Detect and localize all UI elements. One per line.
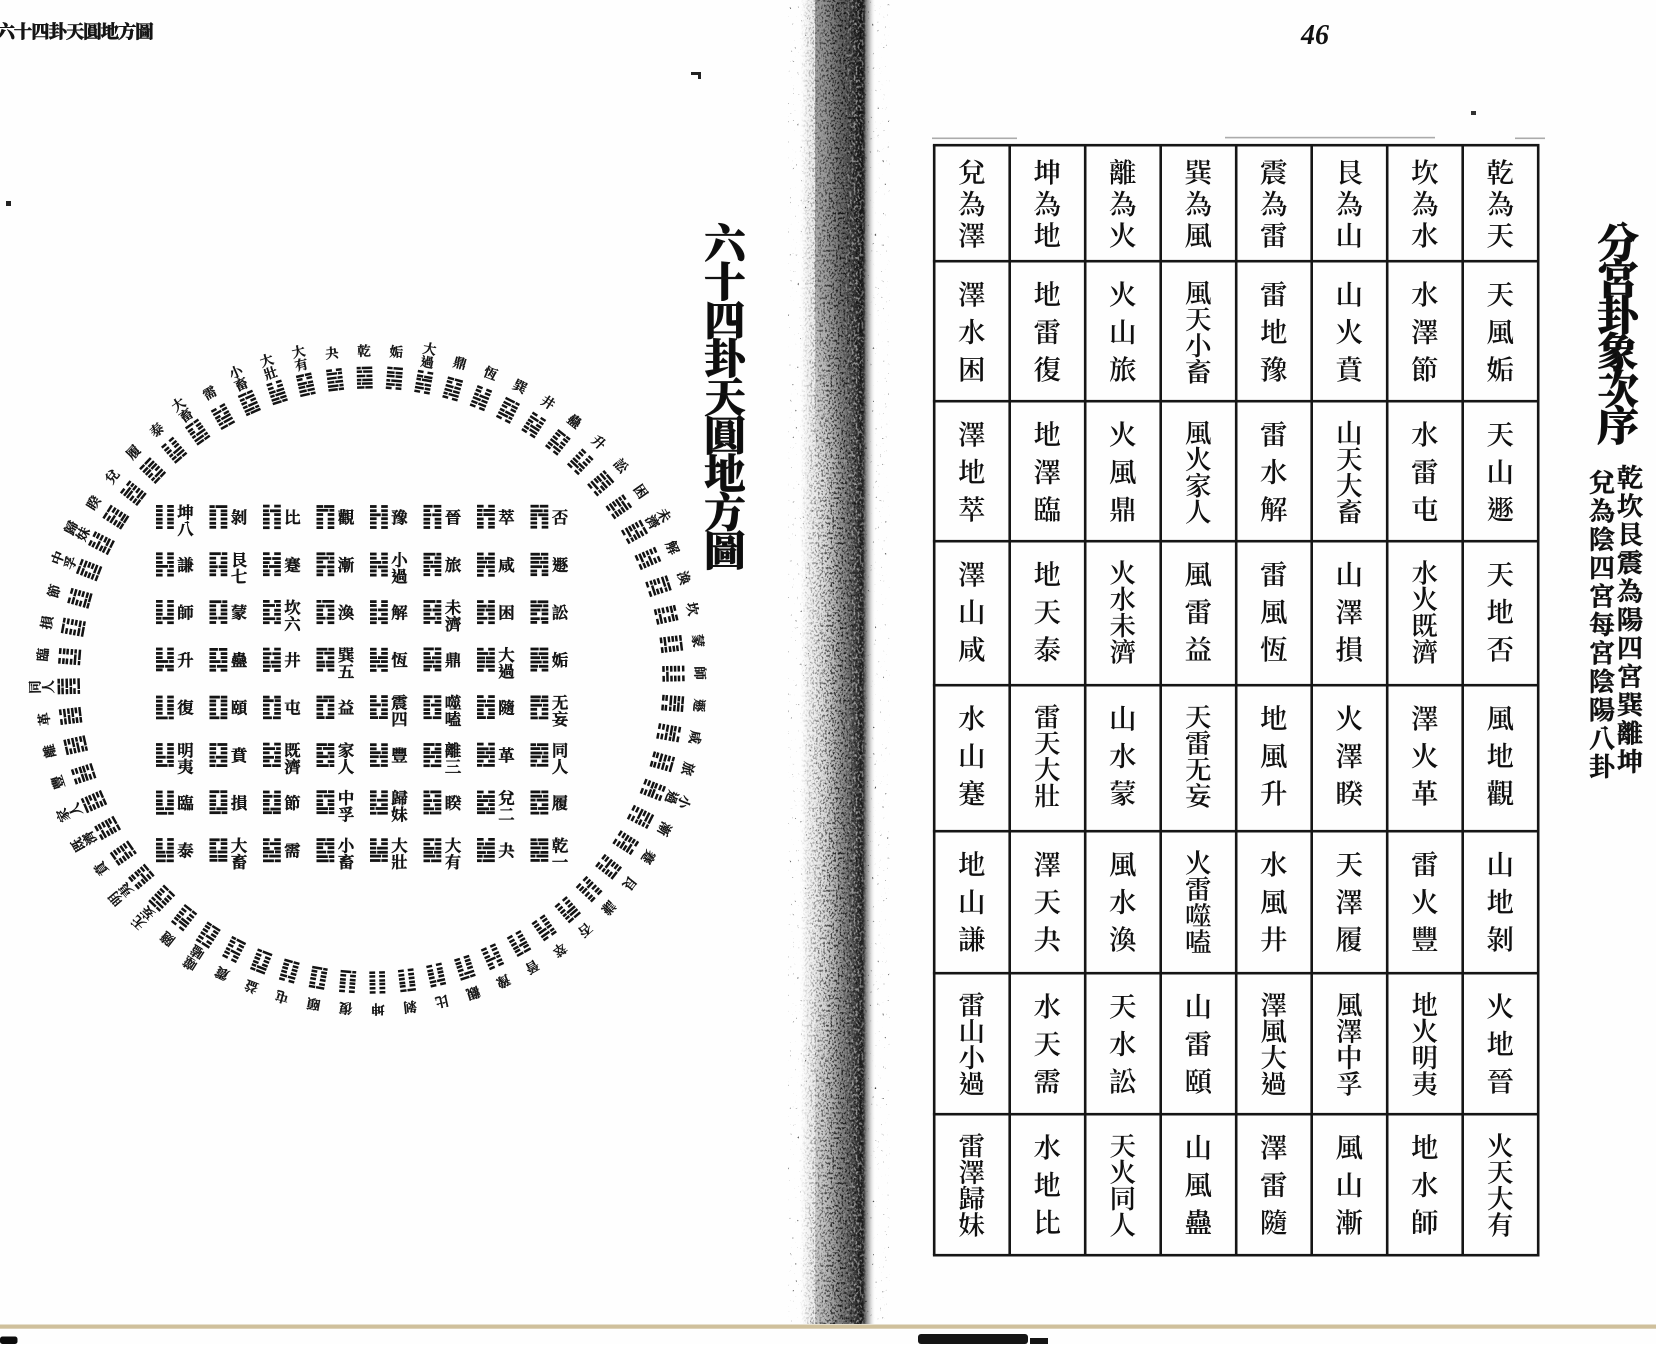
- svg-text:46: 46: [1300, 20, 1329, 51]
